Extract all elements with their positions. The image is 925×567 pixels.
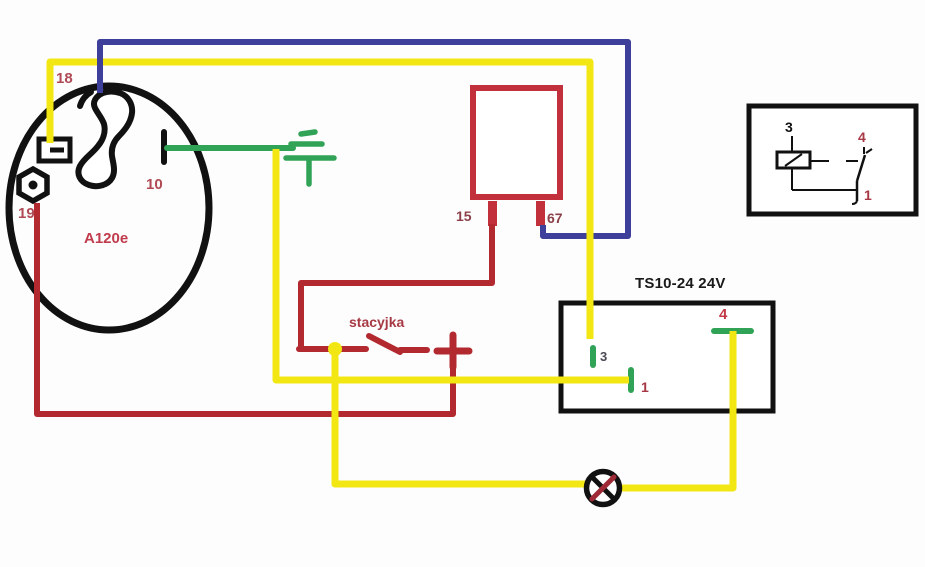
wiring-diagram: 18 19 10 A120e 15 67 stacyjka TS10-24 24… xyxy=(0,0,925,567)
alternator-pin-19-label: 19 xyxy=(18,205,35,222)
regulator-pin-15-label: 15 xyxy=(456,208,472,224)
wire-yellow-18-to-ts3 xyxy=(570,62,590,339)
alternator-pin-18-label: 18 xyxy=(56,70,73,87)
regulator-pin-67-icon xyxy=(536,201,545,226)
relay-box-title: TS10-24 24V xyxy=(635,275,726,292)
armature-blob-icon xyxy=(78,92,132,187)
relay-box-pin-3-label: 3 xyxy=(600,349,607,364)
ground-icon-bar-small xyxy=(301,132,315,134)
regulator-pin-15-icon xyxy=(488,201,497,226)
alternator-pin-10-label: 10 xyxy=(146,176,163,193)
wire-junction-blob xyxy=(328,342,342,356)
wire-red-15-to-switch xyxy=(301,224,492,349)
relay-inset-pin-4-label: 4 xyxy=(858,129,866,145)
relay-box-pin-4-label: 4 xyxy=(719,306,727,323)
regulator-pin-67-label: 67 xyxy=(547,210,563,226)
relay-inset-body xyxy=(749,106,916,214)
diagram-artwork xyxy=(0,0,925,567)
switch-arm-icon xyxy=(369,336,400,352)
ignition-switch-label: stacyjka xyxy=(349,314,404,330)
relay-inset-pin-1-label: 1 xyxy=(864,187,872,203)
alternator-model-label: A120e xyxy=(84,230,128,247)
relay-inset-pin-3-label: 3 xyxy=(785,119,793,135)
hex-nut-center-icon xyxy=(29,181,38,190)
regulator-body xyxy=(473,88,560,197)
relay-box-pin-1-label: 1 xyxy=(641,379,649,395)
